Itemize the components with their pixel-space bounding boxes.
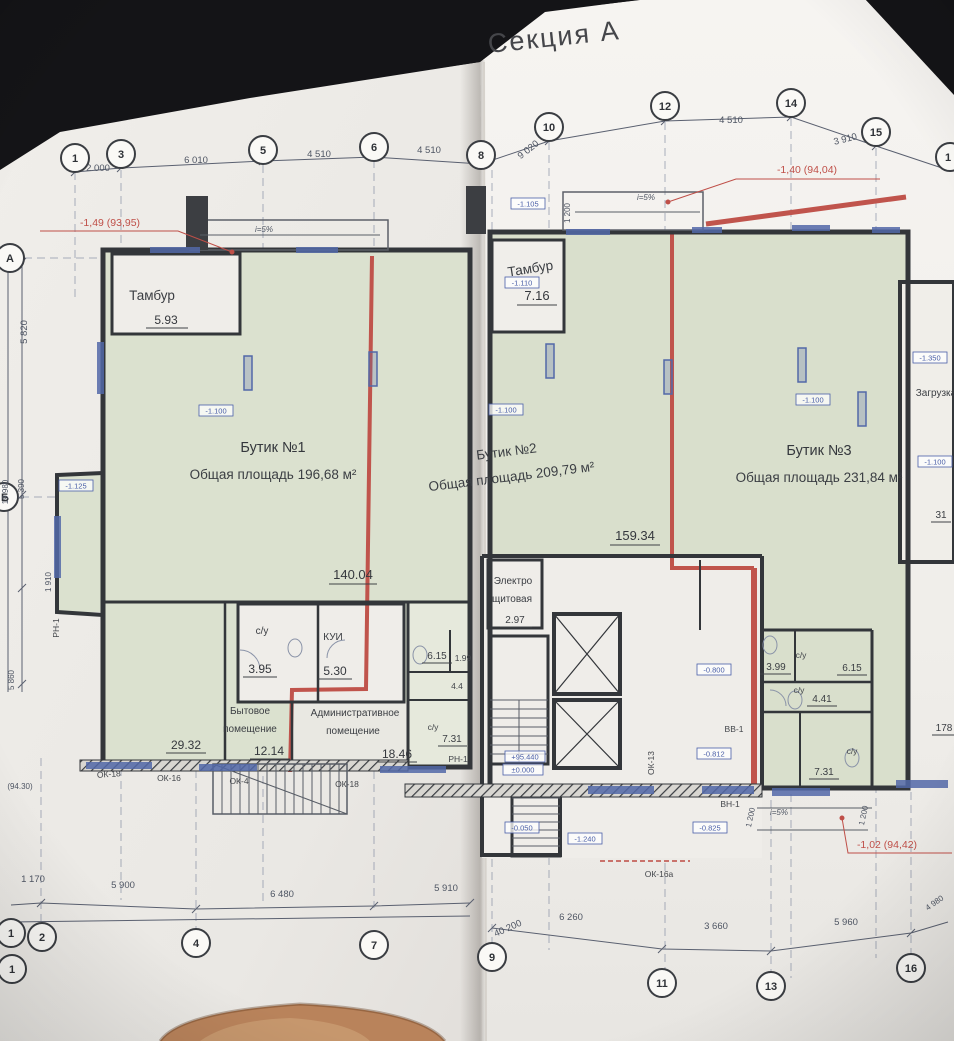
vignette bbox=[0, 0, 954, 1041]
photo-of-floor-plan: Секция А bbox=[0, 0, 954, 1041]
photo-artifacts bbox=[0, 0, 954, 1041]
floor-plan-photo: Секция А bbox=[0, 0, 954, 1041]
